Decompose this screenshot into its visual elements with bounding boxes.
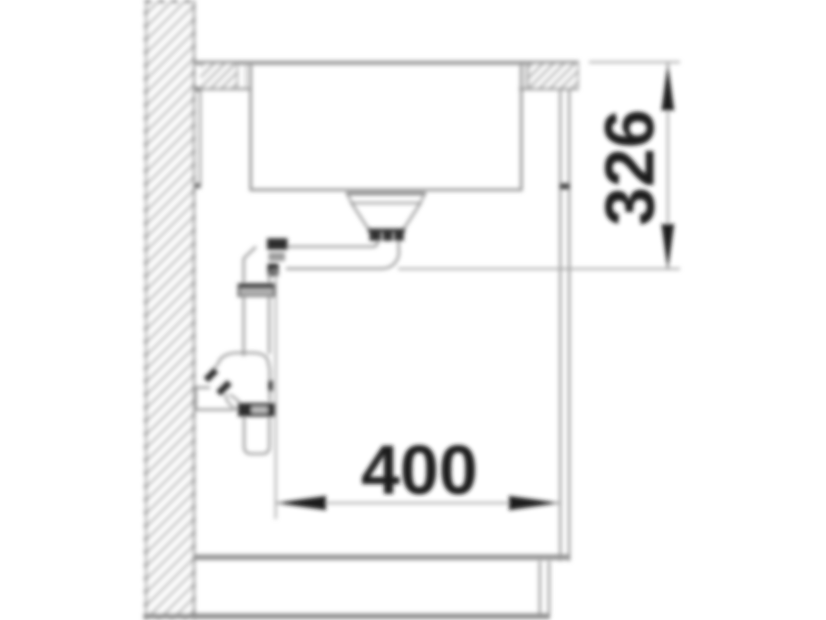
- svg-text:326: 326: [591, 109, 669, 226]
- svg-text:400: 400: [361, 431, 478, 509]
